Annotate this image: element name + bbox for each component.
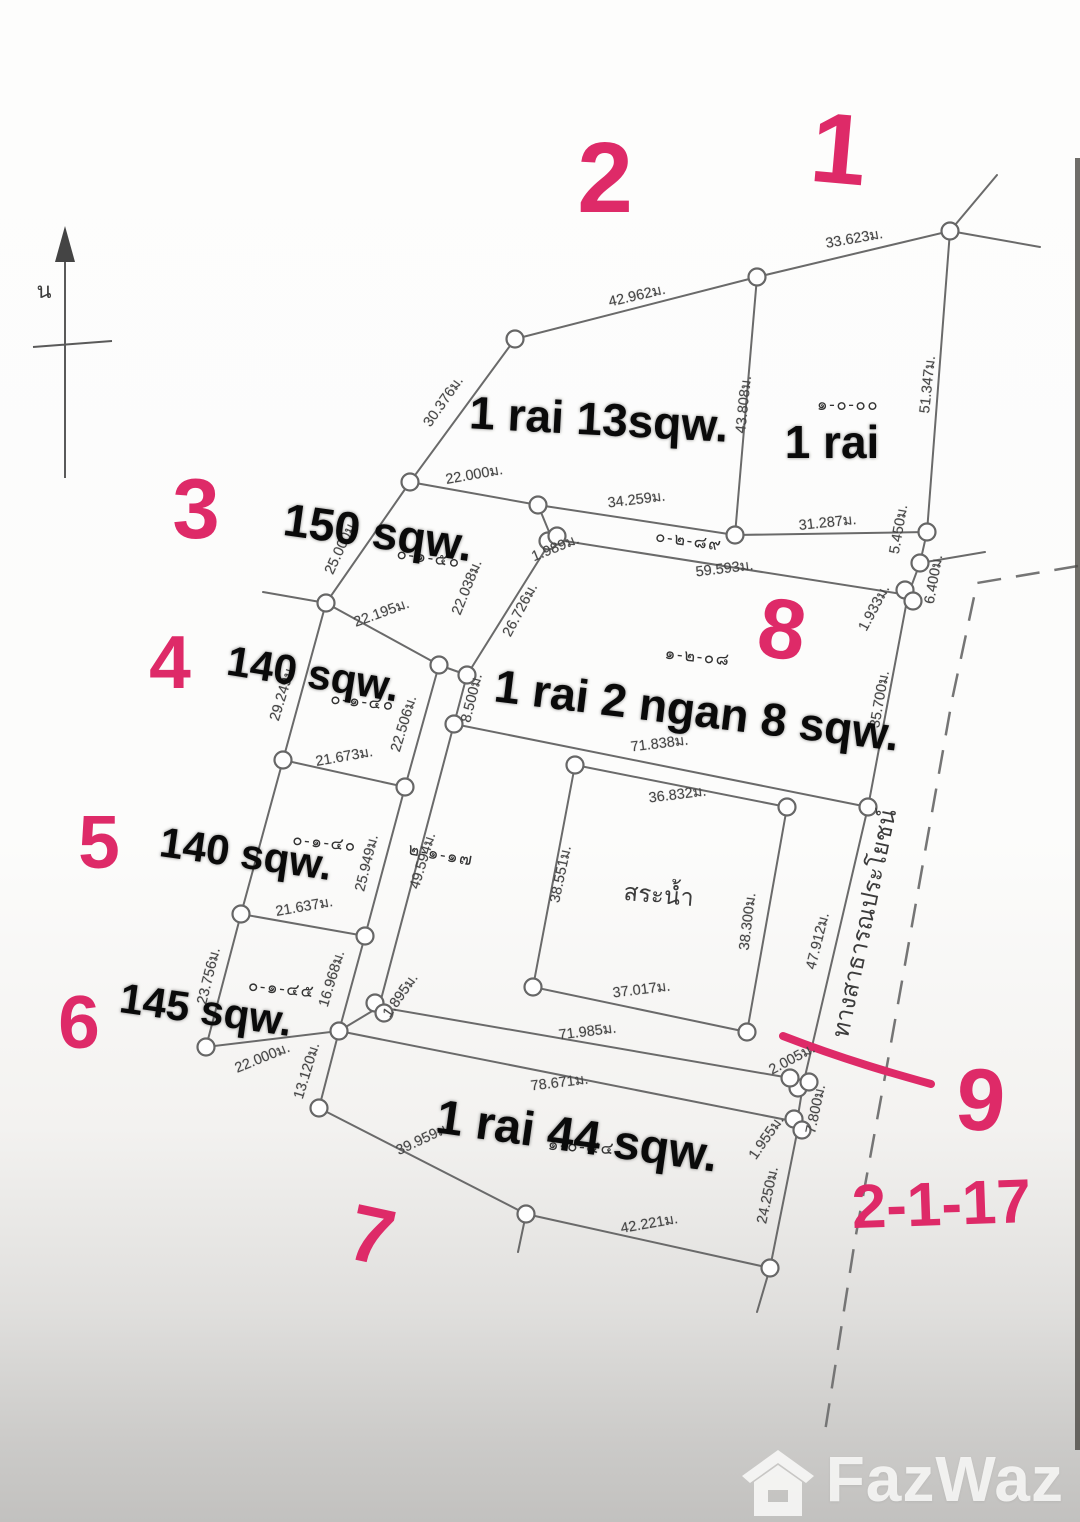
survey-vertex xyxy=(919,524,936,541)
handwritten-plot-number: 8 xyxy=(752,579,812,680)
survey-vertex xyxy=(762,1260,779,1277)
measurement-label: 1.933ม. xyxy=(856,582,894,634)
plot-area-label: 150 sqw. xyxy=(280,493,475,571)
scanned-survey-page: 33.623ม.42.962ม.30.376ม.51.347ม.43.808ม.… xyxy=(0,0,1080,1522)
public-road-label: ทางสาธารณประโยชน์ xyxy=(826,806,902,1040)
survey-vertex xyxy=(749,269,766,286)
survey-vertex xyxy=(912,555,929,572)
handwritten-plot-number: 6 xyxy=(58,980,100,1064)
pond-label: สระน้ำ xyxy=(622,874,695,912)
measurement-label: 43.808ม. xyxy=(733,375,755,434)
measurement-label: 21.673ม. xyxy=(314,744,374,770)
measurement-label: 38.551ม. xyxy=(547,844,575,904)
deed-number-label: ๑-๐-๐๐ xyxy=(817,395,879,414)
survey-vertex xyxy=(905,593,922,610)
measurement-label: 31.287ม. xyxy=(798,512,857,534)
handwritten-plot-number: 2 xyxy=(577,122,633,234)
measurement-label: 22.000ม. xyxy=(233,1040,293,1077)
survey-vertex xyxy=(233,906,250,923)
measurement-label: 37.017ม. xyxy=(612,979,671,1002)
survey-vertex xyxy=(525,979,542,996)
measurement-label: 5.450ม. xyxy=(887,503,911,555)
measurement-label: 22.000ม. xyxy=(444,462,504,488)
measurement-label: 38.300ม. xyxy=(737,892,760,951)
measurement-label: 22.195ม. xyxy=(352,596,412,631)
survey-vertex xyxy=(518,1206,535,1223)
measurement-label: 42.221ม. xyxy=(619,1211,679,1237)
survey-vertex xyxy=(507,331,524,348)
plot-area-label: 140 sqw. xyxy=(157,818,335,889)
measurement-label: 42.962ม. xyxy=(607,282,667,311)
survey-vertex xyxy=(942,223,959,240)
handwritten-plot-number: 4 xyxy=(149,620,191,704)
survey-vertex xyxy=(311,1100,328,1117)
measurement-label: 71.985ม. xyxy=(558,1021,617,1044)
survey-vertex xyxy=(739,1024,756,1041)
land-survey-diagram: 33.623ม.42.962ม.30.376ม.51.347ม.43.808ม.… xyxy=(0,0,1080,1522)
north-label: น xyxy=(36,278,51,303)
handwritten-plot-number: 3 xyxy=(172,462,219,557)
plot-area-label: 1 rai 2 ngan 8 sqw. xyxy=(492,659,903,760)
survey-vertex xyxy=(318,595,335,612)
survey-vertex xyxy=(779,799,796,816)
measurement-label: 30.376ม. xyxy=(421,373,467,430)
public-road-dashed-line xyxy=(824,566,1078,1438)
deed-number-label: ๑-๒-๐๘ xyxy=(664,644,731,670)
survey-vertex xyxy=(402,474,419,491)
measurement-label: 71.838ม. xyxy=(630,733,689,756)
survey-vertex xyxy=(275,752,292,769)
survey-vertex xyxy=(357,928,374,945)
handwritten-plot-number: 2-1-17 xyxy=(851,1167,1033,1242)
plot-area-label: 1 rai xyxy=(785,416,880,468)
handwritten-plot-number: 9 xyxy=(952,1048,1009,1151)
plot-area-label: 1 rai 44 sqw. xyxy=(433,1091,721,1183)
map-label-layer: 33.623ม.42.962ม.30.376ม.51.347ม.43.808ม.… xyxy=(36,91,1032,1283)
survey-vertex xyxy=(431,657,448,674)
measurement-label: 36.832ม. xyxy=(648,784,707,807)
measurement-label: 1.955ม. xyxy=(746,1113,788,1163)
measurement-label: 16.968ม. xyxy=(316,949,348,1009)
measurement-label: 13.120ม. xyxy=(291,1041,323,1101)
handwritten-plot-number: 1 xyxy=(806,91,871,207)
survey-vertex xyxy=(198,1039,215,1056)
measurement-label: 47.912ม. xyxy=(803,911,833,971)
measurement-label: 21.637ม. xyxy=(274,894,334,920)
survey-vertex xyxy=(567,757,584,774)
measurement-label: 24.250ม. xyxy=(754,1165,782,1225)
north-arrow-icon xyxy=(33,226,112,478)
survey-vertex xyxy=(727,527,744,544)
handwritten-plot-number: 7 xyxy=(341,1187,403,1283)
survey-vertex xyxy=(331,1023,348,1040)
survey-vertex xyxy=(397,779,414,796)
scan-edge-shadow xyxy=(1075,158,1080,1450)
measurement-label: 34.259ม. xyxy=(607,489,666,512)
handwritten-plot-number: 5 xyxy=(78,800,120,884)
plot-area-label: 1 rai 13sqw. xyxy=(468,386,729,451)
measurement-label: 78.671ม. xyxy=(530,1072,589,1095)
measurement-label: 59.593ม. xyxy=(695,558,754,581)
survey-vertex xyxy=(530,497,547,514)
